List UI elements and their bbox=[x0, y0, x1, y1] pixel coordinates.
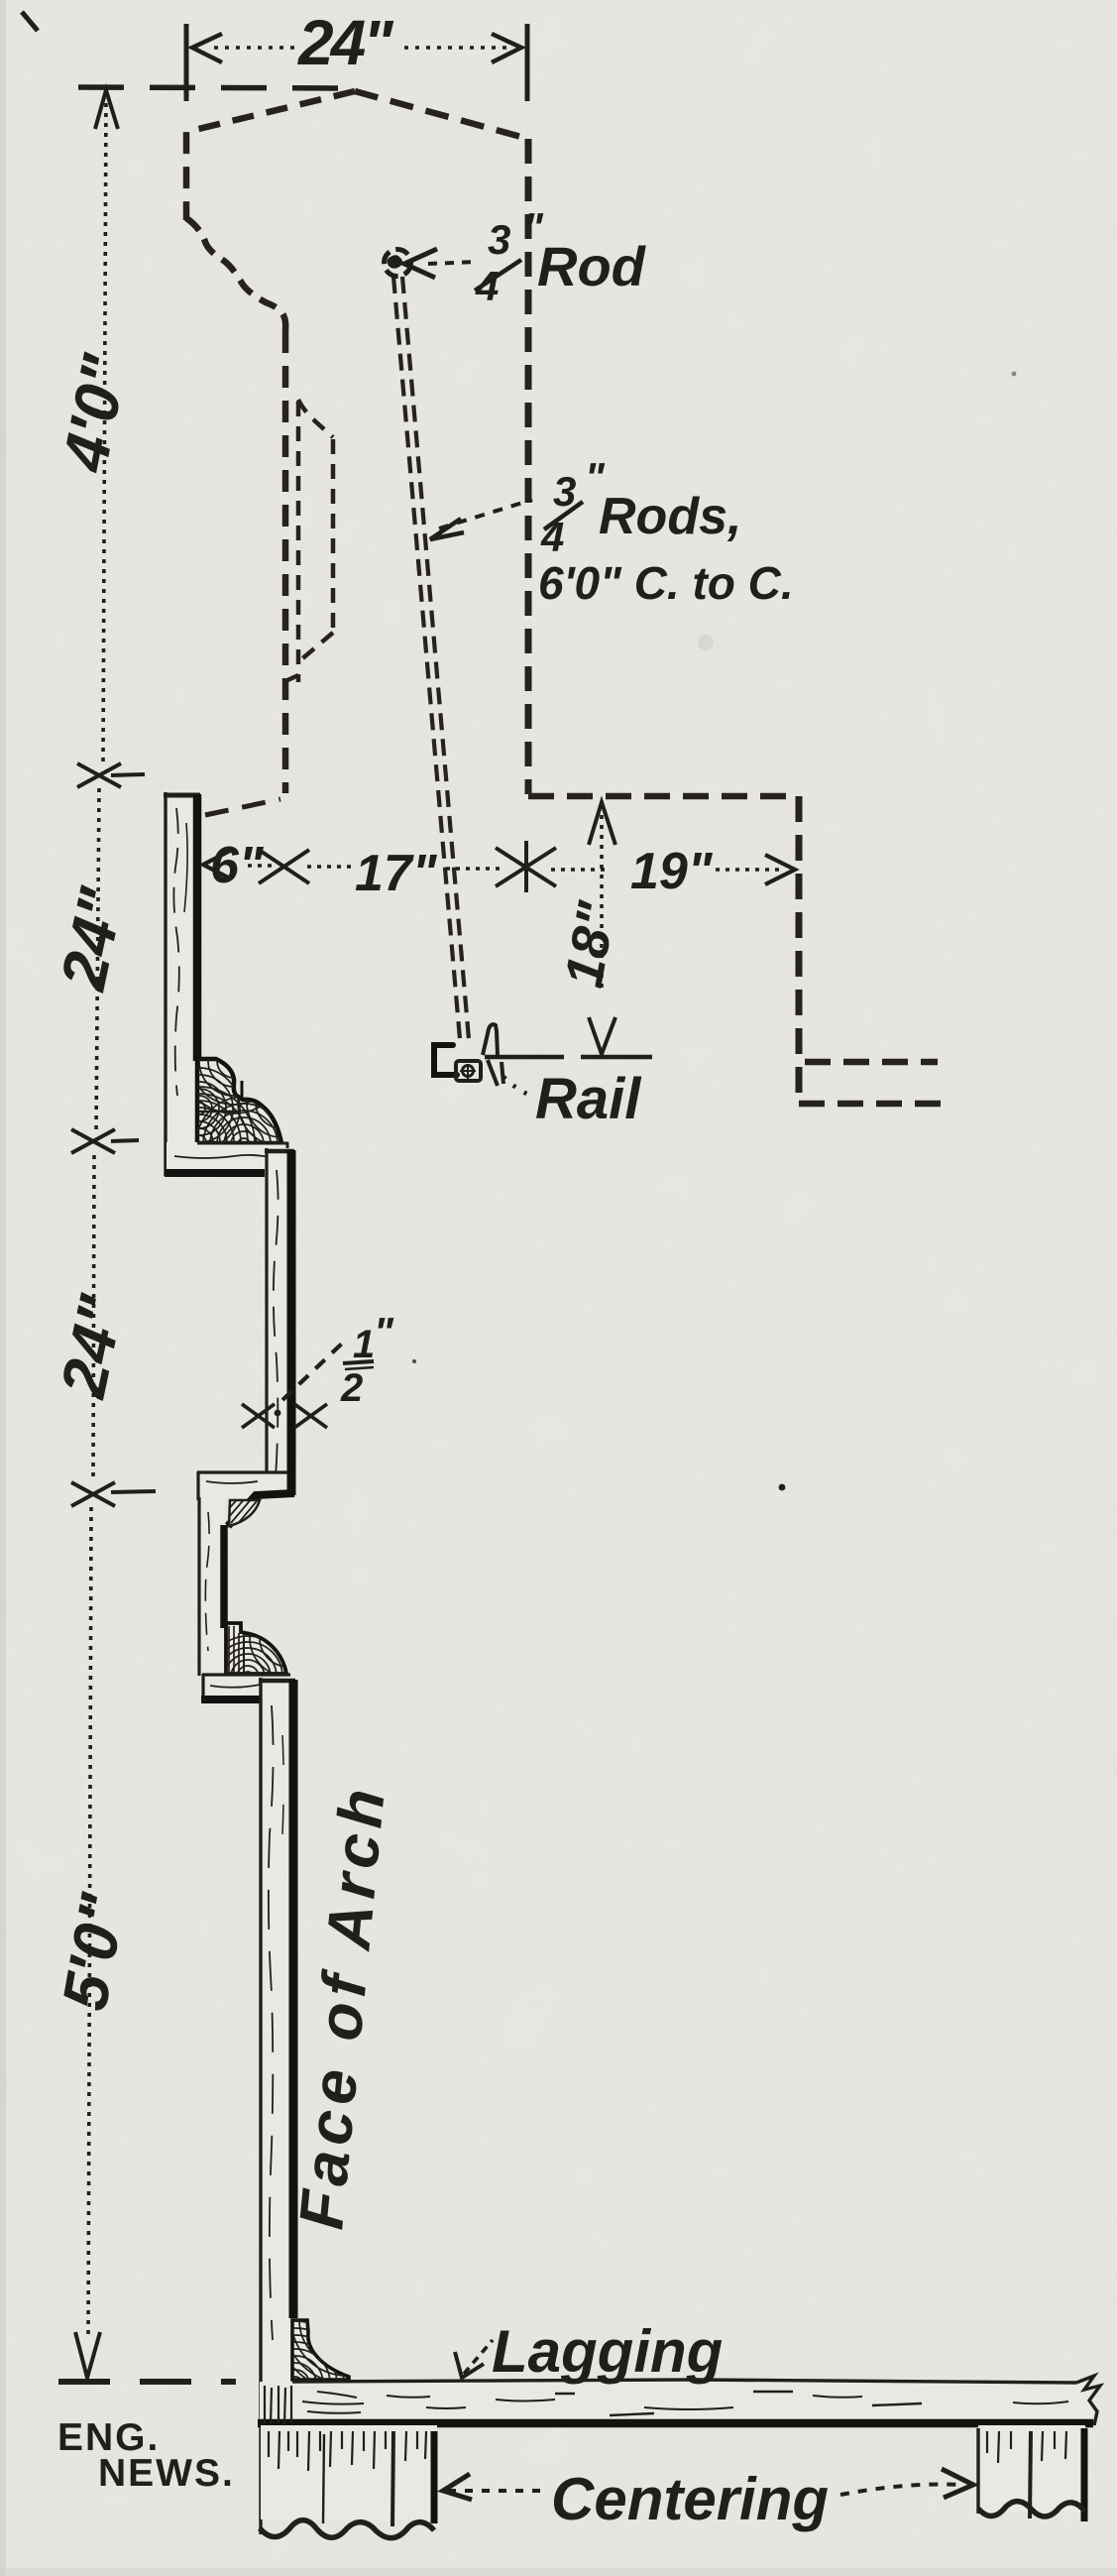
svg-text:Lagging: Lagging bbox=[492, 2318, 723, 2385]
svg-text:6'0" C. to C.: 6'0" C. to C. bbox=[538, 557, 794, 609]
svg-text:": " bbox=[374, 1309, 394, 1355]
svg-text:Rods,: Rods, bbox=[599, 488, 741, 545]
svg-text:19": 19" bbox=[630, 843, 714, 900]
svg-text:Rail: Rail bbox=[535, 1067, 642, 1131]
svg-text:Rod: Rod bbox=[537, 235, 647, 297]
svg-text:4: 4 bbox=[540, 514, 564, 560]
svg-text:6": 6" bbox=[210, 837, 265, 894]
svg-text:NEWS.: NEWS. bbox=[98, 2452, 235, 2495]
svg-text:2: 2 bbox=[340, 1366, 363, 1410]
svg-text:24": 24" bbox=[297, 7, 393, 78]
svg-text:Centering: Centering bbox=[551, 2466, 829, 2532]
svg-text:17": 17" bbox=[355, 845, 438, 902]
svg-text:3: 3 bbox=[488, 216, 510, 263]
